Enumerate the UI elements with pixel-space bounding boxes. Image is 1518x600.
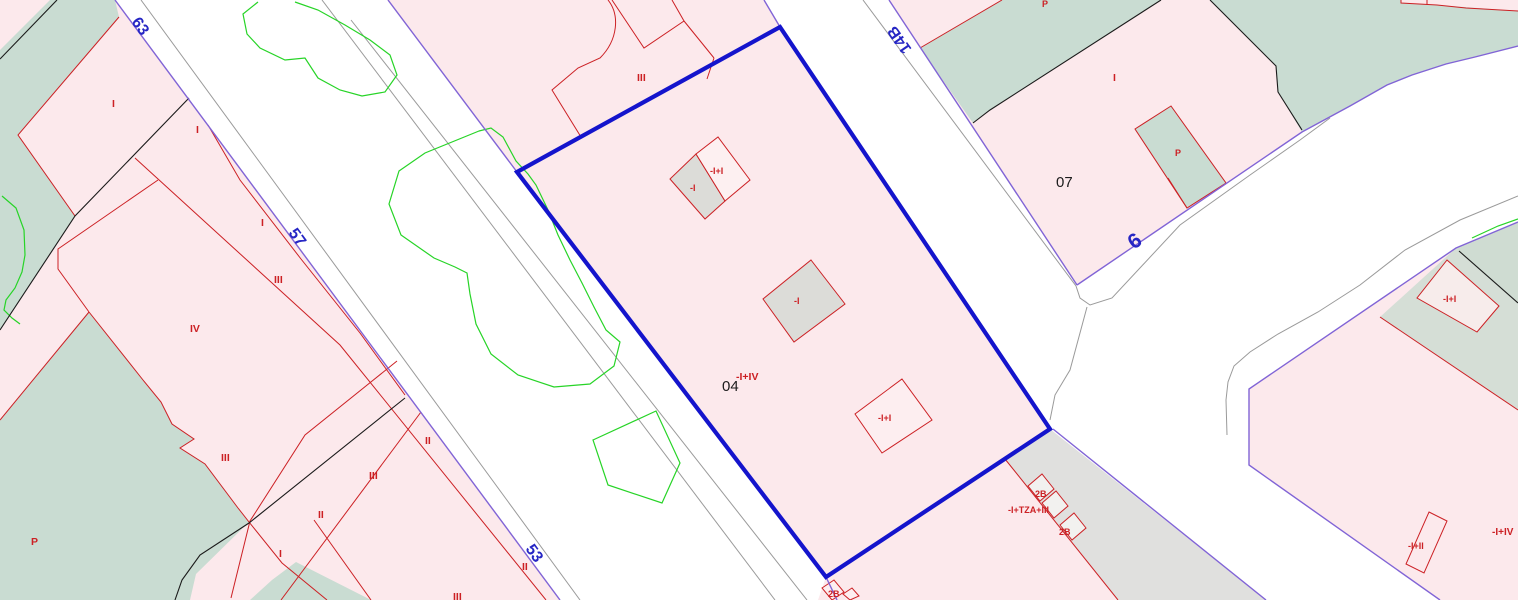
svg-text:III: III (369, 470, 378, 482)
svg-text:I: I (196, 124, 199, 136)
svg-text:P: P (1175, 148, 1181, 158)
svg-text:IV: IV (190, 323, 200, 335)
svg-text:III: III (274, 274, 283, 286)
svg-text:-I+IV: -I+IV (736, 371, 758, 383)
svg-text:2B: 2B (1059, 527, 1071, 537)
svg-text:III: III (637, 72, 646, 84)
svg-text:-I+I: -I+I (710, 166, 723, 176)
svg-text:-I+TZA+III: -I+TZA+III (1008, 505, 1049, 515)
svg-text:2B: 2B (828, 589, 840, 599)
svg-text:II: II (425, 435, 431, 447)
svg-text:-I+IV: -I+IV (1492, 527, 1514, 538)
svg-text:2B: 2B (1035, 489, 1047, 499)
svg-text:II: II (522, 561, 528, 573)
svg-text:III: III (221, 452, 230, 464)
svg-text:-I: -I (794, 296, 800, 306)
svg-text:I: I (279, 548, 282, 560)
svg-text:P: P (31, 536, 38, 548)
svg-text:P: P (1042, 0, 1048, 9)
svg-text:I: I (261, 217, 264, 229)
svg-text:II: II (318, 509, 324, 521)
svg-text:I: I (112, 98, 115, 110)
svg-text:07: 07 (1056, 174, 1073, 191)
svg-text:-I+I: -I+I (878, 413, 891, 423)
svg-text:-I: -I (690, 183, 696, 193)
svg-text:I: I (1113, 72, 1116, 84)
svg-text:-I+I: -I+I (1443, 294, 1456, 304)
svg-text:III: III (453, 591, 462, 600)
svg-text:-I+II: -I+II (1408, 541, 1424, 551)
